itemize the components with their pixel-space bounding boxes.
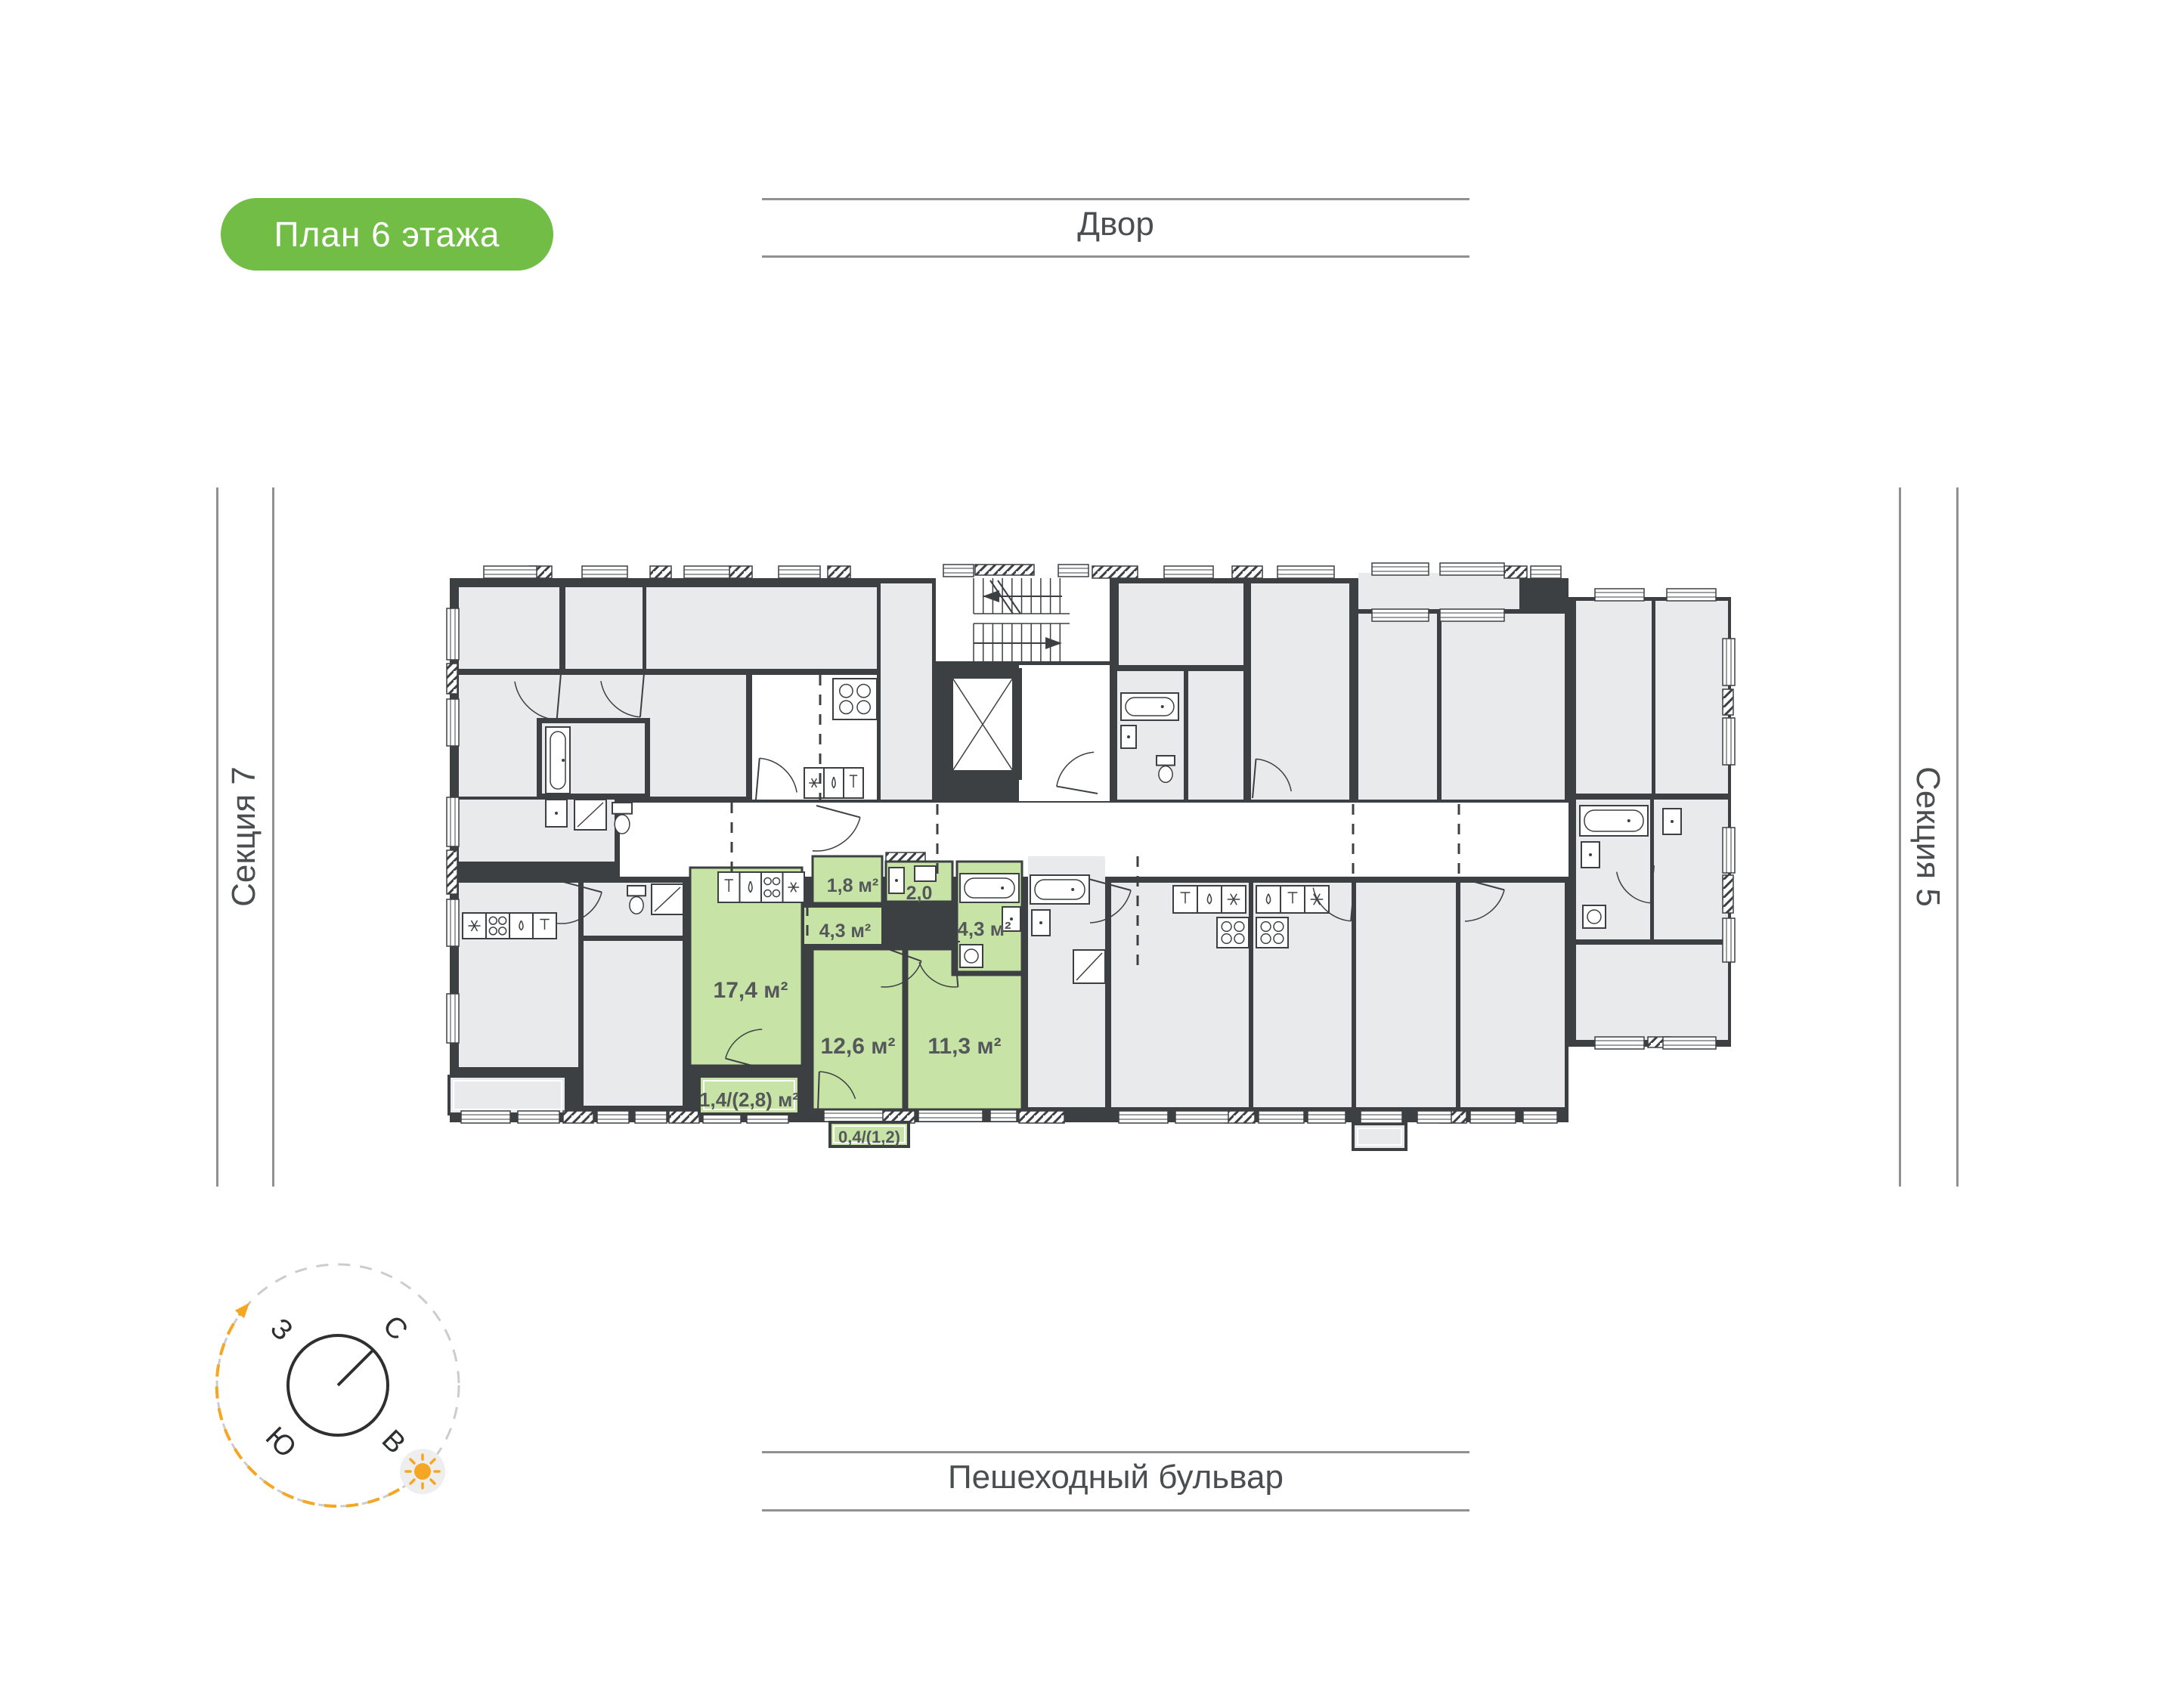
fixture bbox=[546, 727, 570, 794]
hatched-wall bbox=[975, 565, 1034, 575]
window bbox=[1164, 566, 1213, 578]
room bbox=[881, 583, 932, 800]
room bbox=[646, 587, 877, 669]
hatched-wall bbox=[1504, 566, 1527, 578]
fixture bbox=[1217, 917, 1249, 948]
fixture bbox=[824, 768, 844, 798]
fixture bbox=[1256, 917, 1288, 948]
room bbox=[1251, 583, 1349, 800]
room bbox=[459, 675, 746, 797]
room bbox=[1576, 601, 1652, 794]
bathtub-icon bbox=[562, 759, 565, 762]
window bbox=[779, 566, 820, 578]
room bbox=[1356, 883, 1456, 1107]
window bbox=[1440, 609, 1504, 621]
window bbox=[1372, 563, 1429, 575]
window bbox=[1523, 1111, 1557, 1123]
bathtub-icon bbox=[1071, 888, 1074, 891]
label-kitchen-living: 17,4 м² bbox=[714, 978, 788, 1003]
label-bathroom: 4,3 м² bbox=[957, 917, 1011, 940]
window bbox=[461, 1111, 510, 1123]
window bbox=[447, 699, 459, 746]
room bbox=[1019, 665, 1110, 801]
window bbox=[1119, 1111, 1168, 1123]
room bbox=[1460, 883, 1565, 1107]
window bbox=[447, 899, 459, 946]
fixture bbox=[1256, 886, 1280, 913]
room bbox=[1576, 945, 1728, 1040]
sun-icon bbox=[406, 1455, 439, 1488]
hatched-wall bbox=[729, 566, 752, 578]
sink-icon bbox=[1127, 735, 1130, 738]
label-bedroom-2: 11,3 м² bbox=[927, 1034, 1001, 1059]
room bbox=[1253, 883, 1352, 1107]
fixture bbox=[833, 679, 877, 719]
label-corridor: 4,3 м² bbox=[819, 921, 872, 942]
room bbox=[1655, 601, 1728, 794]
wall bbox=[537, 718, 650, 723]
room bbox=[584, 941, 683, 1106]
window bbox=[1417, 1111, 1451, 1123]
hatched-wall bbox=[447, 850, 457, 894]
floor-plan: 17,4 м² 1,8 м² 2,0 4,3 м² 4,3 м² 12,6 м²… bbox=[0, 0, 2177, 1708]
window bbox=[1308, 1111, 1346, 1123]
window bbox=[635, 1111, 667, 1123]
window bbox=[1372, 609, 1429, 621]
compass: С В Ю З bbox=[207, 1255, 469, 1517]
fixture bbox=[761, 872, 783, 902]
window bbox=[1723, 639, 1735, 685]
fixture bbox=[509, 913, 533, 939]
room bbox=[459, 883, 578, 1067]
window bbox=[990, 1109, 1017, 1122]
window bbox=[1595, 1037, 1644, 1049]
fixture bbox=[627, 886, 646, 896]
room bbox=[1111, 883, 1249, 1107]
room bbox=[459, 587, 559, 669]
window bbox=[447, 994, 459, 1043]
window bbox=[447, 608, 459, 660]
fixture bbox=[915, 866, 936, 881]
wall bbox=[645, 718, 650, 797]
label-hallway: 1,8 м² bbox=[827, 875, 879, 896]
window bbox=[1440, 563, 1504, 575]
room bbox=[1119, 583, 1243, 665]
fixture bbox=[1197, 886, 1222, 913]
window bbox=[684, 566, 729, 578]
window bbox=[1259, 1111, 1304, 1123]
bathtub-icon bbox=[1627, 819, 1630, 822]
hatched-wall bbox=[447, 664, 457, 694]
hatched-wall bbox=[563, 1111, 593, 1123]
wall bbox=[537, 718, 542, 797]
window bbox=[1175, 1111, 1228, 1123]
bathtub-icon bbox=[1161, 705, 1164, 708]
window bbox=[1723, 828, 1735, 873]
window bbox=[1595, 589, 1644, 601]
hatched-wall bbox=[828, 566, 850, 578]
room-bedroom-1[interactable] bbox=[813, 949, 903, 1109]
window bbox=[447, 797, 459, 846]
hatched-wall bbox=[1723, 689, 1733, 715]
room bbox=[1358, 614, 1437, 800]
toilet-icon bbox=[1159, 766, 1172, 783]
toilet-icon bbox=[630, 896, 643, 914]
fixture bbox=[740, 872, 762, 902]
room bbox=[1188, 671, 1243, 800]
window bbox=[918, 1109, 983, 1122]
window bbox=[1361, 1111, 1402, 1123]
compass-east: В bbox=[376, 1424, 412, 1460]
window bbox=[582, 566, 627, 578]
fixture bbox=[1157, 756, 1175, 766]
bathtub-icon bbox=[1001, 886, 1004, 890]
hatched-wall bbox=[669, 1111, 699, 1123]
room bbox=[1442, 614, 1565, 800]
window bbox=[1663, 1037, 1716, 1049]
fixture bbox=[612, 803, 632, 814]
toilet-icon bbox=[615, 815, 630, 834]
window bbox=[484, 566, 537, 578]
hatched-wall bbox=[1723, 875, 1733, 913]
sink-icon bbox=[1039, 921, 1042, 924]
window bbox=[1667, 589, 1716, 601]
room bbox=[565, 587, 643, 669]
window bbox=[943, 565, 974, 577]
sink-icon bbox=[1589, 853, 1592, 856]
fixture bbox=[1583, 905, 1606, 928]
window bbox=[1723, 918, 1735, 962]
hatched-wall bbox=[1019, 1111, 1064, 1123]
wall bbox=[537, 794, 650, 799]
hatched-wall bbox=[1092, 566, 1138, 578]
label-bedroom-1: 12,6 м² bbox=[821, 1034, 896, 1059]
compass-north: С bbox=[376, 1310, 413, 1347]
label-bathroom-small: 2,0 bbox=[906, 883, 933, 904]
compass-south: Ю bbox=[259, 1421, 302, 1464]
window bbox=[597, 1111, 629, 1123]
hatched-wall bbox=[1232, 566, 1262, 578]
compass-west: З bbox=[264, 1312, 299, 1347]
window bbox=[1470, 1111, 1516, 1123]
window bbox=[1058, 565, 1088, 577]
hatched-wall bbox=[1225, 1111, 1255, 1123]
room bbox=[1358, 573, 1519, 609]
sink-icon bbox=[555, 812, 558, 815]
hatched-wall bbox=[650, 566, 671, 578]
balcony bbox=[449, 1076, 566, 1114]
window bbox=[1723, 718, 1735, 765]
label-balcony: 0,4/(1,2) bbox=[838, 1128, 900, 1146]
window bbox=[824, 1109, 883, 1122]
fixture bbox=[486, 913, 509, 939]
fixture bbox=[960, 945, 983, 967]
sink-icon bbox=[1671, 820, 1674, 823]
room bbox=[936, 578, 1110, 661]
window bbox=[1277, 566, 1334, 578]
window bbox=[1531, 566, 1561, 578]
label-loggia: 1,4/(2,8) м² bbox=[699, 1088, 799, 1111]
sink-icon bbox=[895, 879, 898, 882]
window bbox=[518, 1111, 559, 1123]
